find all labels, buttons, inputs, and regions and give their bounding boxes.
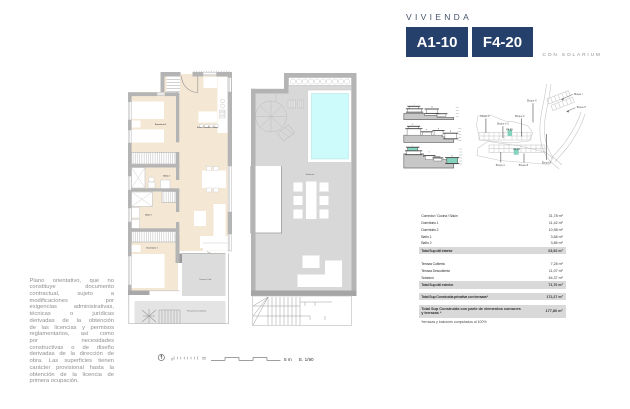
svg-text:Bloque A: Bloque A [496,164,506,167]
svg-text:B: B [450,131,452,133]
svg-text:Bloque m C: Bloque m C [497,124,509,126]
svg-text:I: I [414,104,415,106]
svg-text:Bloque B: Bloque B [519,165,529,167]
svg-text:C: C [429,152,431,154]
svg-text:Dormitorio 2: Dormitorio 2 [155,123,166,126]
svg-text:Bloque I: Bloque I [574,94,583,96]
svg-text:Baño 1: Baño 1 [145,214,151,217]
svg-text:F4-20: F4-20 [506,129,513,132]
svg-text:Bloque D: Bloque D [515,116,525,118]
svg-text:Terraza Cub.: Terraza Cub. [199,278,212,281]
svg-text:0: 0 [171,358,173,362]
svg-text:Bloque E: Bloque E [542,163,552,165]
svg-text:Dormitorio 1: Dormitorio 1 [146,246,157,249]
svg-text:A1-10: A1-10 [513,148,520,151]
svg-text:Bloque P: Bloque P [480,116,490,118]
svg-text:E. 1/90: E. 1/90 [299,357,314,362]
svg-text:Bloque N: Bloque N [527,101,537,103]
svg-text:Estar Comedor Cocina: Estar Comedor Cocina [197,126,218,129]
svg-text:E: E [438,128,440,130]
svg-text:5 m: 5 m [284,357,292,362]
svg-text:Baño 2: Baño 2 [163,175,169,178]
svg-text:A: A [431,106,433,109]
svg-text:Bloque H: Bloque H [577,107,587,109]
svg-text:F: F [426,130,428,132]
svg-text:Solarium: Solarium [306,173,315,176]
svg-text:Terraza Descubierta: Terraza Descubierta [187,309,207,312]
